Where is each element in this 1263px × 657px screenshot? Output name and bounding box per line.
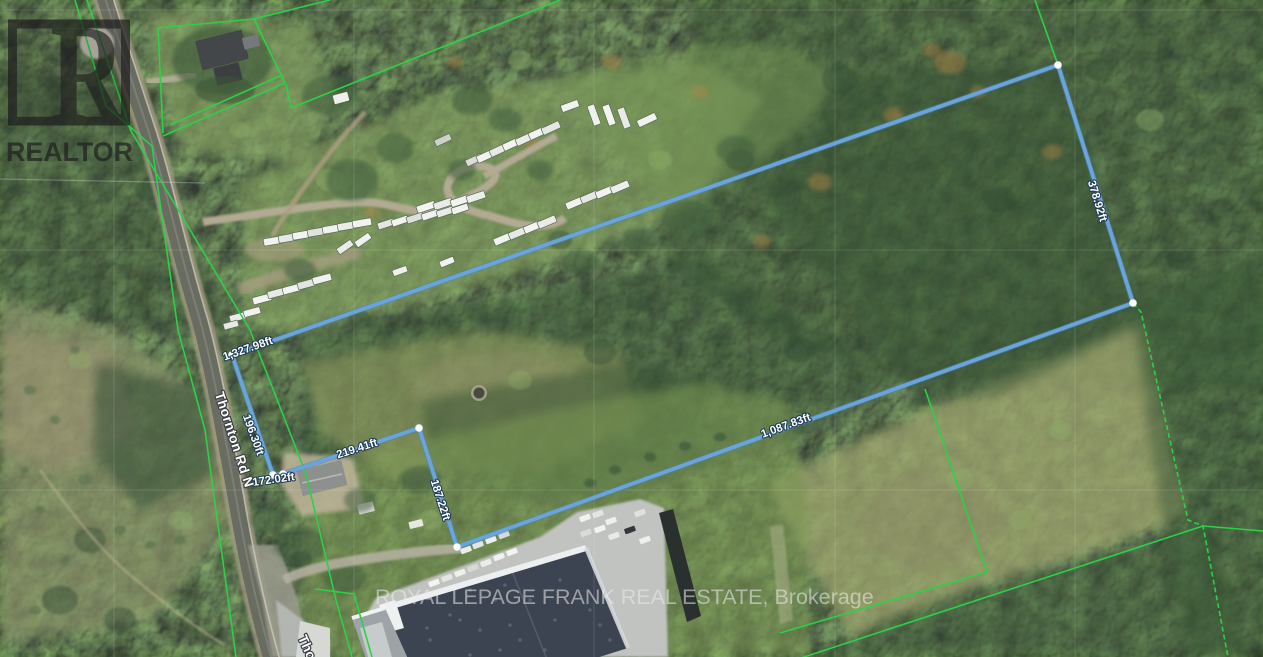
svg-text:ROYAL LEPAGE FRANK REAL ESTATE: ROYAL LEPAGE FRANK REAL ESTATE, Brokerag… — [375, 585, 874, 609]
svg-text:R: R — [50, 0, 127, 152]
svg-text:REALTOR: REALTOR — [6, 137, 133, 167]
